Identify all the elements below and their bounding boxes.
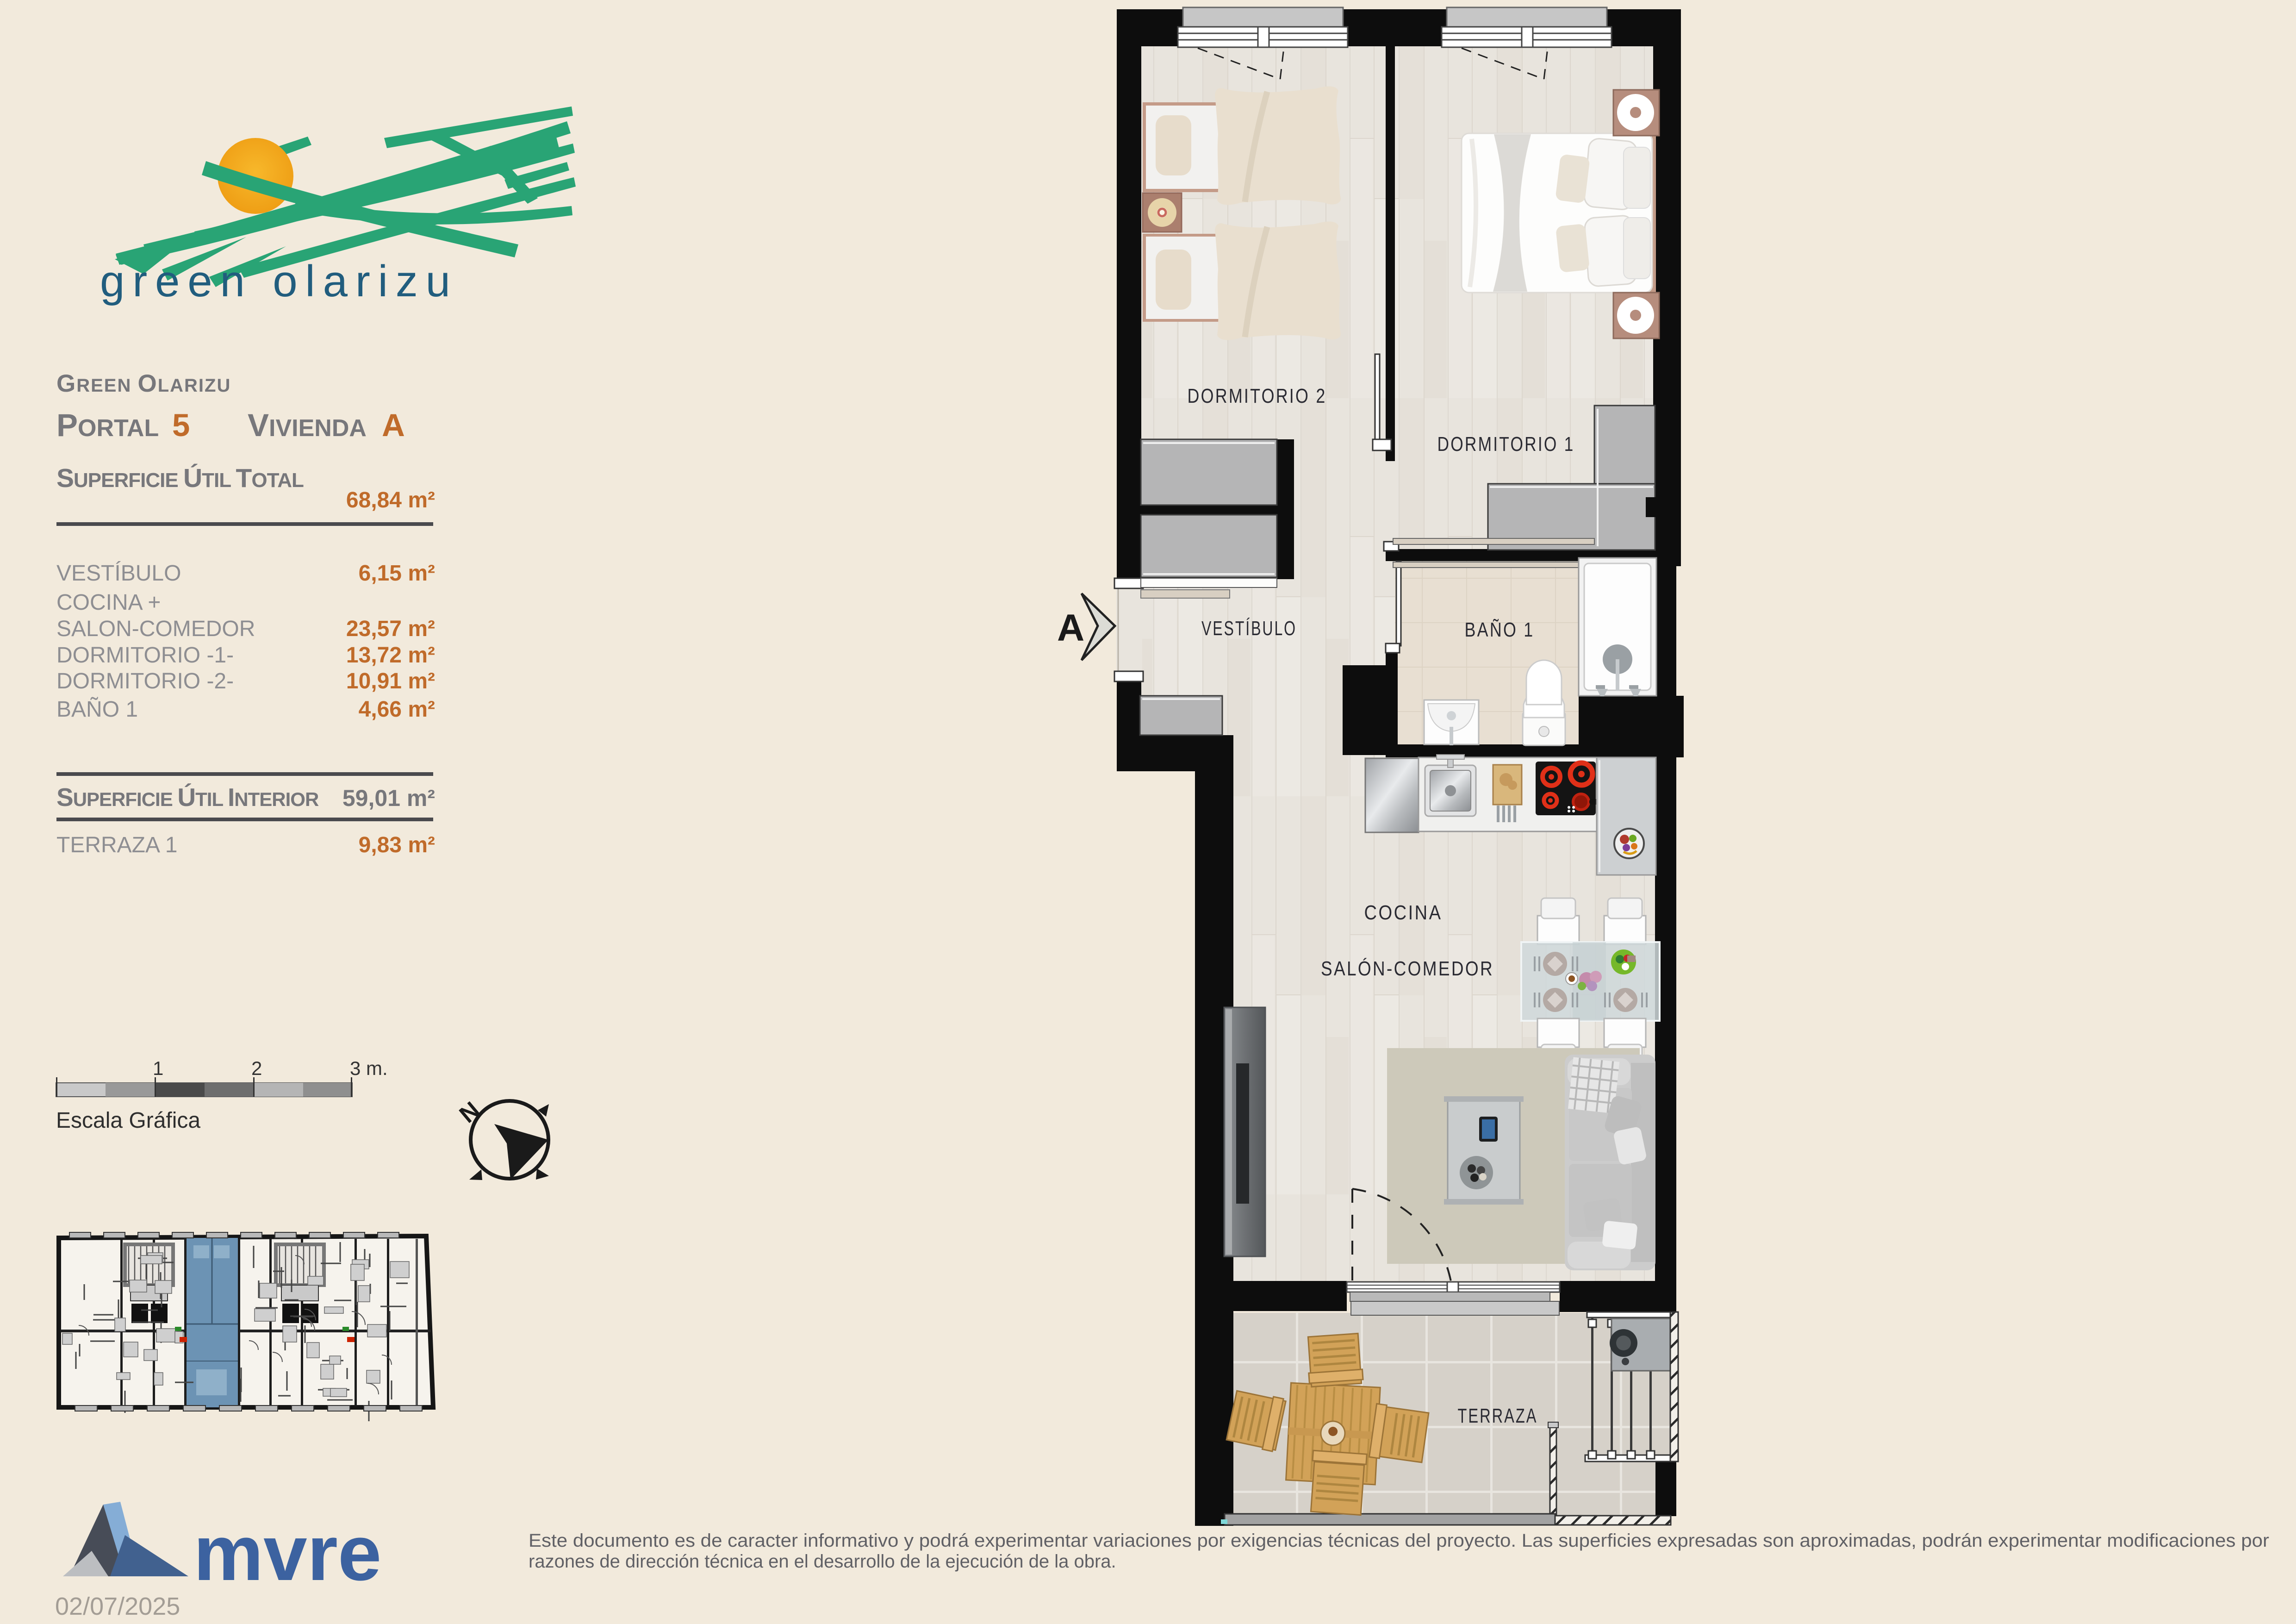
- svg-text:TERRAZA: TERRAZA: [1458, 1405, 1538, 1427]
- svg-text:DORMITORIO -1-: DORMITORIO -1-: [56, 643, 234, 668]
- svg-text:59,01 m²: 59,01 m²: [342, 785, 435, 811]
- svg-text:SUPERFICIE ÚTIL TOTAL: SUPERFICIE ÚTIL TOTAL: [56, 463, 304, 493]
- svg-text:VESTÍBULO: VESTÍBULO: [56, 561, 181, 586]
- svg-text:SALON-COMEDOR: SALON-COMEDOR: [56, 617, 255, 641]
- svg-text:A: A: [1057, 607, 1084, 649]
- svg-text:GREEN OLARIZU: GREEN OLARIZU: [56, 370, 231, 397]
- svg-text:Escala Gráfica: Escala Gráfica: [56, 1108, 200, 1133]
- svg-text:DORMITORIO 2: DORMITORIO 2: [1188, 385, 1327, 407]
- svg-text:razones de dirección técnica e: razones de dirección técnica en el desar…: [529, 1551, 1116, 1572]
- svg-text:5: 5: [172, 407, 190, 443]
- svg-text:mvre: mvre: [193, 1509, 381, 1597]
- svg-text:2: 2: [251, 1057, 262, 1079]
- svg-text:3 m.: 3 m.: [350, 1057, 388, 1079]
- svg-text:9,83 m²: 9,83 m²: [359, 833, 435, 857]
- svg-text:SALÓN-COMEDOR: SALÓN-COMEDOR: [1321, 957, 1494, 980]
- svg-text:A: A: [382, 407, 405, 443]
- svg-text:DORMITORIO 1: DORMITORIO 1: [1437, 433, 1575, 456]
- svg-text:23,57 m²: 23,57 m²: [346, 617, 435, 641]
- svg-text:10,91 m²: 10,91 m²: [346, 669, 435, 693]
- svg-text:COCINA +: COCINA +: [56, 590, 161, 615]
- svg-text:Este documento es de caracter: Este documento es de caracter informativ…: [529, 1530, 2269, 1551]
- svg-text:COCINA: COCINA: [1364, 901, 1443, 924]
- svg-text:1: 1: [153, 1057, 163, 1079]
- svg-text:4,66 m²: 4,66 m²: [359, 697, 435, 722]
- svg-text:02/07/2025: 02/07/2025: [55, 1593, 180, 1620]
- svg-text:N: N: [454, 1097, 485, 1129]
- svg-text:TERRAZA 1: TERRAZA 1: [56, 833, 177, 857]
- svg-text:VIVIENDA: VIVIENDA: [248, 407, 367, 443]
- svg-text:13,72 m²: 13,72 m²: [346, 643, 435, 668]
- svg-text:BAÑO 1: BAÑO 1: [56, 697, 138, 722]
- svg-text:6,15 m²: 6,15 m²: [359, 561, 435, 586]
- svg-text:DORMITORIO -2-: DORMITORIO -2-: [56, 669, 234, 693]
- svg-text:68,84 m²: 68,84 m²: [346, 488, 435, 512]
- svg-text:SUPERFICIE ÚTIL INTERIOR: SUPERFICIE ÚTIL INTERIOR: [56, 783, 319, 812]
- svg-text:PORTAL: PORTAL: [56, 407, 159, 443]
- svg-text:BAÑO 1: BAÑO 1: [1465, 618, 1535, 641]
- svg-text:VESTÍBULO: VESTÍBULO: [1201, 617, 1297, 640]
